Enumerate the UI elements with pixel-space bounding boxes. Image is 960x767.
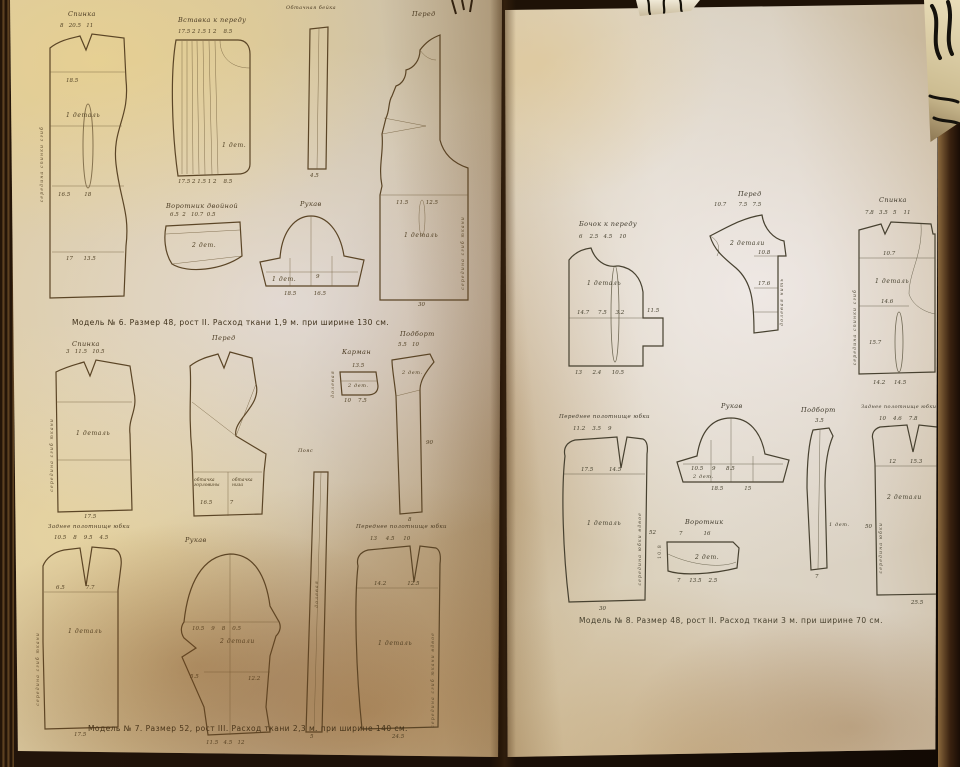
m7-poyas: Пояс долевая 5 <box>282 440 342 740</box>
m8-spinka-num-mid3: 15.7 <box>869 340 881 346</box>
m8-vorotnik-num-top: 7 16 <box>679 531 710 537</box>
m8-perednee-outline <box>545 412 670 617</box>
m8-pered-num-top: 10.7 7.5 7.5 <box>714 202 761 208</box>
m6-pered-label: Перед <box>412 10 436 18</box>
m6-spinka-label: Спинка <box>68 10 96 18</box>
m7-spinka-detail: 1 деталь <box>76 430 110 437</box>
m7-spinka-fold-text: середина сгиб ткани <box>50 418 55 492</box>
m7-podbort-detail: 2 дет. <box>402 370 423 376</box>
m7-spinka-num-bottom: 17.5 <box>84 514 96 520</box>
m6-vorotnik-num-top: 6.5 2 10.7 0.5 <box>170 212 215 218</box>
m7-podbort: Подборт 5.5 10 2 дет. 90 8 <box>378 330 453 526</box>
m7-rukav-label: Рукав <box>185 536 207 544</box>
m7-perednee-label: Переднее полотнище юбки <box>356 524 447 530</box>
m8-zadnee-num-mid: 12 15.3 <box>889 459 922 465</box>
m6-spinka-outline <box>28 6 163 316</box>
m8-zadnee-detail: 2 детали <box>887 494 922 501</box>
m7-rukav-num-side: 5.5 <box>190 674 199 680</box>
m7-perednee-outline <box>340 522 480 746</box>
m7-zadnee-fold-text: середина сгиб ткани <box>36 632 41 706</box>
m8-bochok-num-top: 6 2.5 4.5 10 <box>579 234 626 240</box>
m8-pered-outline <box>690 188 805 350</box>
book-photo: Спинка 8 20.5 11 18.5 1 деталь 16.5 18 1… <box>0 0 960 767</box>
m6-vorotnik-label: Воротник двойной <box>166 202 238 210</box>
m8-spinka-num-mid: 10.7 <box>883 251 895 257</box>
m6-vstavka: Вставка к переду 17.5 2 1.5 1 2 8.5 1 де… <box>160 14 265 189</box>
m6-vorotnik-detail: 2 дет. <box>192 242 216 249</box>
m8-spinka: Спинка 7.8 3.5 5 11 10.7 1 деталь 14.6 1… <box>843 194 948 394</box>
m7-poyas-label: Пояс <box>298 448 313 454</box>
m8-perednee-num-bottom: 30 <box>599 606 606 612</box>
m8-bochok: Бочок к переду 6 2.5 4.5 10 1 деталь 14.… <box>553 218 678 390</box>
m7-karman-num-top: 13.5 <box>352 363 364 369</box>
m8-pered-grain-text: долевая нить <box>780 278 785 326</box>
m8-vorotnik-num-bottom: 7 13.5 2.5 <box>677 578 717 584</box>
m7-podbort-num-side: 90 <box>426 440 433 446</box>
m7-karman-label: Карман <box>342 348 371 356</box>
m8-podbort-outline <box>787 404 852 586</box>
m8-podbort: Подборт 3.5 1 дет. 7 <box>787 404 852 586</box>
m7-perednee-fold-text: середина сгиб ткани вдвое <box>431 632 436 728</box>
m8-zadnee-label: Заднее полотнище юбки <box>861 404 936 410</box>
m7-poyas-num-bottom: 5 <box>310 734 314 740</box>
m6-pered: Перед 11.5 12.5 1 деталь 30 середина сги… <box>368 6 483 311</box>
m7-podbort-num-top: 5.5 10 <box>398 342 419 348</box>
m6-spinka-detail: 1 деталь <box>66 112 100 119</box>
m6-beika-outline <box>280 5 350 183</box>
m8-pered-num-mid: 10.8 <box>758 250 770 256</box>
m8-spinka-num-mid2: 14.6 <box>881 299 893 305</box>
m8-pered-label: Перед <box>738 190 762 198</box>
m8-rukav-num-mid: 10.5 9 8.5 <box>691 466 735 472</box>
model6-caption: Модель № 6. Размер 48, рост II. Расход т… <box>72 318 389 327</box>
m6-vstavka-detail: 1 дет. <box>222 142 246 149</box>
m7-zadnee-num-top: 10.5 8 9.5 4.5 <box>54 535 108 541</box>
m8-rukav-detail: 2 дет. <box>693 474 714 480</box>
m7-podbort-label: Подборт <box>400 330 435 338</box>
m8-spinka-fold-text: середина спинки сгиб <box>853 289 858 365</box>
m6-spinka: Спинка 8 20.5 11 18.5 1 деталь 16.5 18 1… <box>28 6 163 316</box>
m7-pered-label: Перед <box>212 334 236 342</box>
m6-spinka-num-mid2: 16.5 18 <box>58 192 91 198</box>
m7-zadnee-detail: 1 деталь <box>68 628 102 635</box>
m8-zadnee-num-side: 50 <box>865 524 872 530</box>
m8-podbort-detail: 1 дет. <box>829 522 850 528</box>
m6-pered-num-mid: 11.5 12.5 <box>396 200 438 206</box>
m6-spinka-num-mid: 18.5 <box>66 78 78 84</box>
m8-bochok-num-mid: 14.7 7.5 3.2 <box>577 310 624 316</box>
m8-perednee-num-mid: 17.5 14.5 <box>581 467 621 473</box>
m8-pered: Перед 10.7 7.5 7.5 2 детали 10.8 17.6 до… <box>690 188 805 350</box>
m6-vstavka-num-top: 17.5 2 1.5 1 2 8.5 <box>178 29 232 35</box>
m7-spinka-label: Спинка <box>72 340 100 348</box>
m8-pered-detail: 2 детали <box>730 240 765 247</box>
m6-vstavka-num-bottom: 17.5 2 1.5 1 2 8.5 <box>178 179 232 185</box>
m6-vorotnik: Воротник двойной 6.5 2 10.7 0.5 2 дет. <box>152 200 257 285</box>
m7-pered-subnum: 16.5 7 <box>200 500 233 506</box>
m6-beika-label: Обтачная бейка <box>286 5 336 11</box>
m6-spinka-fold-text: середина спинки сгиб <box>40 126 45 202</box>
m8-spinka-num-top: 7.8 3.5 5 11 <box>865 210 910 216</box>
m8-perednee-label: Переднее полотнище юбки <box>559 414 650 420</box>
m7-rukav-num-bottom: 11.5 4.5 12 <box>206 740 244 746</box>
m6-spinka-num-bottom: 17 13.5 <box>66 256 96 262</box>
adjacent-sheet-marks <box>446 0 480 28</box>
m7-perednee-detail: 1 деталь <box>378 640 412 647</box>
m6-rukav-label: Рукав <box>300 200 322 208</box>
m8-bochok-num-side: 11.5 <box>647 308 659 314</box>
m8-spinka-detail: 1 деталь <box>875 278 909 285</box>
m7-rukav-detail: 2 детали <box>220 638 255 645</box>
m8-pered-num-mid2: 17.6 <box>758 281 770 287</box>
m7-pered-outline <box>168 332 278 524</box>
m7-poyas-grain-text: долевая <box>315 580 320 608</box>
m8-perednee-num-top: 11.2 3.5 9 <box>573 426 611 432</box>
m8-spinka-num-bottom: 14.2 14.5 <box>873 380 906 386</box>
m8-rukav-num-bottom: 18.5 15 <box>711 486 751 492</box>
m6-beika: Обтачная бейка 4.5 <box>280 5 350 183</box>
m6-pered-num-bottom: 30 <box>418 302 425 308</box>
m6-rukav-num-mid: 9 <box>316 274 320 280</box>
m7-rukav-num-top: 10.5 9 8 0.5 <box>192 626 241 632</box>
m7-spinka-outline <box>38 338 163 520</box>
m8-spinka-outline <box>843 194 948 394</box>
left-page: Спинка 8 20.5 11 18.5 1 деталь 16.5 18 1… <box>10 0 502 757</box>
m8-bochok-label: Бочок к переду <box>579 220 637 228</box>
m8-vorotnik-label: Воротник <box>685 518 723 526</box>
m7-zadnee-polotnishche: Заднее полотнище юбки 10.5 8 9.5 4.5 6.5… <box>28 522 168 746</box>
m6-spinka-num-top: 8 20.5 11 <box>60 23 93 29</box>
m7-pered-sub1: обтачка горловины <box>194 478 226 488</box>
m6-vstavka-outline <box>160 14 265 189</box>
m7-karman-num-bottom: 10 7.5 <box>344 398 367 404</box>
m8-zadnee-num-bottom: 25.5 <box>911 600 923 606</box>
m7-zadnee-num-bottom: 17.5 <box>74 732 86 738</box>
m8-zadnee-fold-text: середина юбки <box>879 522 884 573</box>
m7-karman-grain-text: долевая <box>331 370 336 398</box>
m6-pered-detail: 1 деталь <box>404 232 438 239</box>
m7-zadnee-label: Заднее полотнище юбки <box>48 524 130 530</box>
m8-bochok-detail: 1 деталь <box>587 280 621 287</box>
m7-perednee-num-mid: 14.2 12.5 <box>374 581 419 587</box>
m7-podbort-outline <box>378 330 453 526</box>
m7-pered: Перед обтачка горловины обтачка низа 16.… <box>168 332 278 524</box>
m7-zadnee-num-mid: 6.5 7.7 <box>56 585 94 591</box>
m7-perednee-num-top: 13 4.5 10 <box>370 536 410 542</box>
m8-zadnee-num-top: 10 4.6 7.8 <box>879 416 917 422</box>
right-page: Бочок к переду 6 2.5 4.5 10 1 деталь 14.… <box>505 4 938 757</box>
m7-pered-sub2: обтачка низа <box>232 478 260 488</box>
m8-perednee-detail: 1 деталь <box>587 520 621 527</box>
m6-rukav-outline <box>250 198 375 303</box>
m8-vorotnik-detail: 2 дет. <box>695 554 719 561</box>
m8-spinka-label: Спинка <box>879 196 907 204</box>
m8-perednee-fold-text: середина юбки вдвое <box>638 512 643 586</box>
m7-perednee-num-bottom: 24.5 <box>392 734 404 740</box>
m6-rukav-num-bottom: 18.5 16.5 <box>284 291 326 297</box>
m7-spinka-num-top: 3 11.5 10.5 <box>66 349 104 355</box>
m6-vstavka-label: Вставка к переду <box>178 16 246 24</box>
m8-podbort-num-top: 3.5 <box>815 418 824 424</box>
m7-rukav-num-mid: 12.2 <box>248 676 260 682</box>
m6-pered-fold-text: середина сгиб ткани <box>461 216 466 290</box>
m8-podbort-label: Подборт <box>801 406 836 414</box>
m8-bochok-outline <box>553 218 678 390</box>
model8-caption: Модель № 8. Размер 48, рост II. Расход т… <box>579 616 883 625</box>
m7-perednee-polotnishche: Переднее полотнище юбки 13 4.5 10 14.2 1… <box>340 522 480 746</box>
model7-caption: Модель № 7. Размер 52, рост III. Расход … <box>88 724 408 733</box>
m7-poyas-outline <box>282 440 342 740</box>
m8-vorotnik-num-side: 10.8 <box>658 544 663 559</box>
m8-podbort-num-bottom: 7 <box>815 574 819 580</box>
m8-vorotnik: Воротник 7 16 2 дет. 10.8 7 13.5 2.5 <box>653 516 763 588</box>
m8-rukav-label: Рукав <box>721 402 743 410</box>
m8-bochok-num-bottom: 13 2.4 10.5 <box>575 370 624 376</box>
m6-rukav-detail: 1 дет. <box>272 276 296 283</box>
m7-karman-detail: 2 дет. <box>348 383 369 389</box>
m8-perednee-polotnishche: Переднее полотнище юбки 11.2 3.5 9 17.5 … <box>545 412 670 617</box>
m6-rukav: Рукав 1 дет. 9 18.5 16.5 <box>250 198 375 303</box>
m6-beika-num-bottom: 4.5 <box>310 173 319 179</box>
m7-spinka: Спинка 3 11.5 10.5 1 деталь 17.5 середин… <box>38 338 163 520</box>
